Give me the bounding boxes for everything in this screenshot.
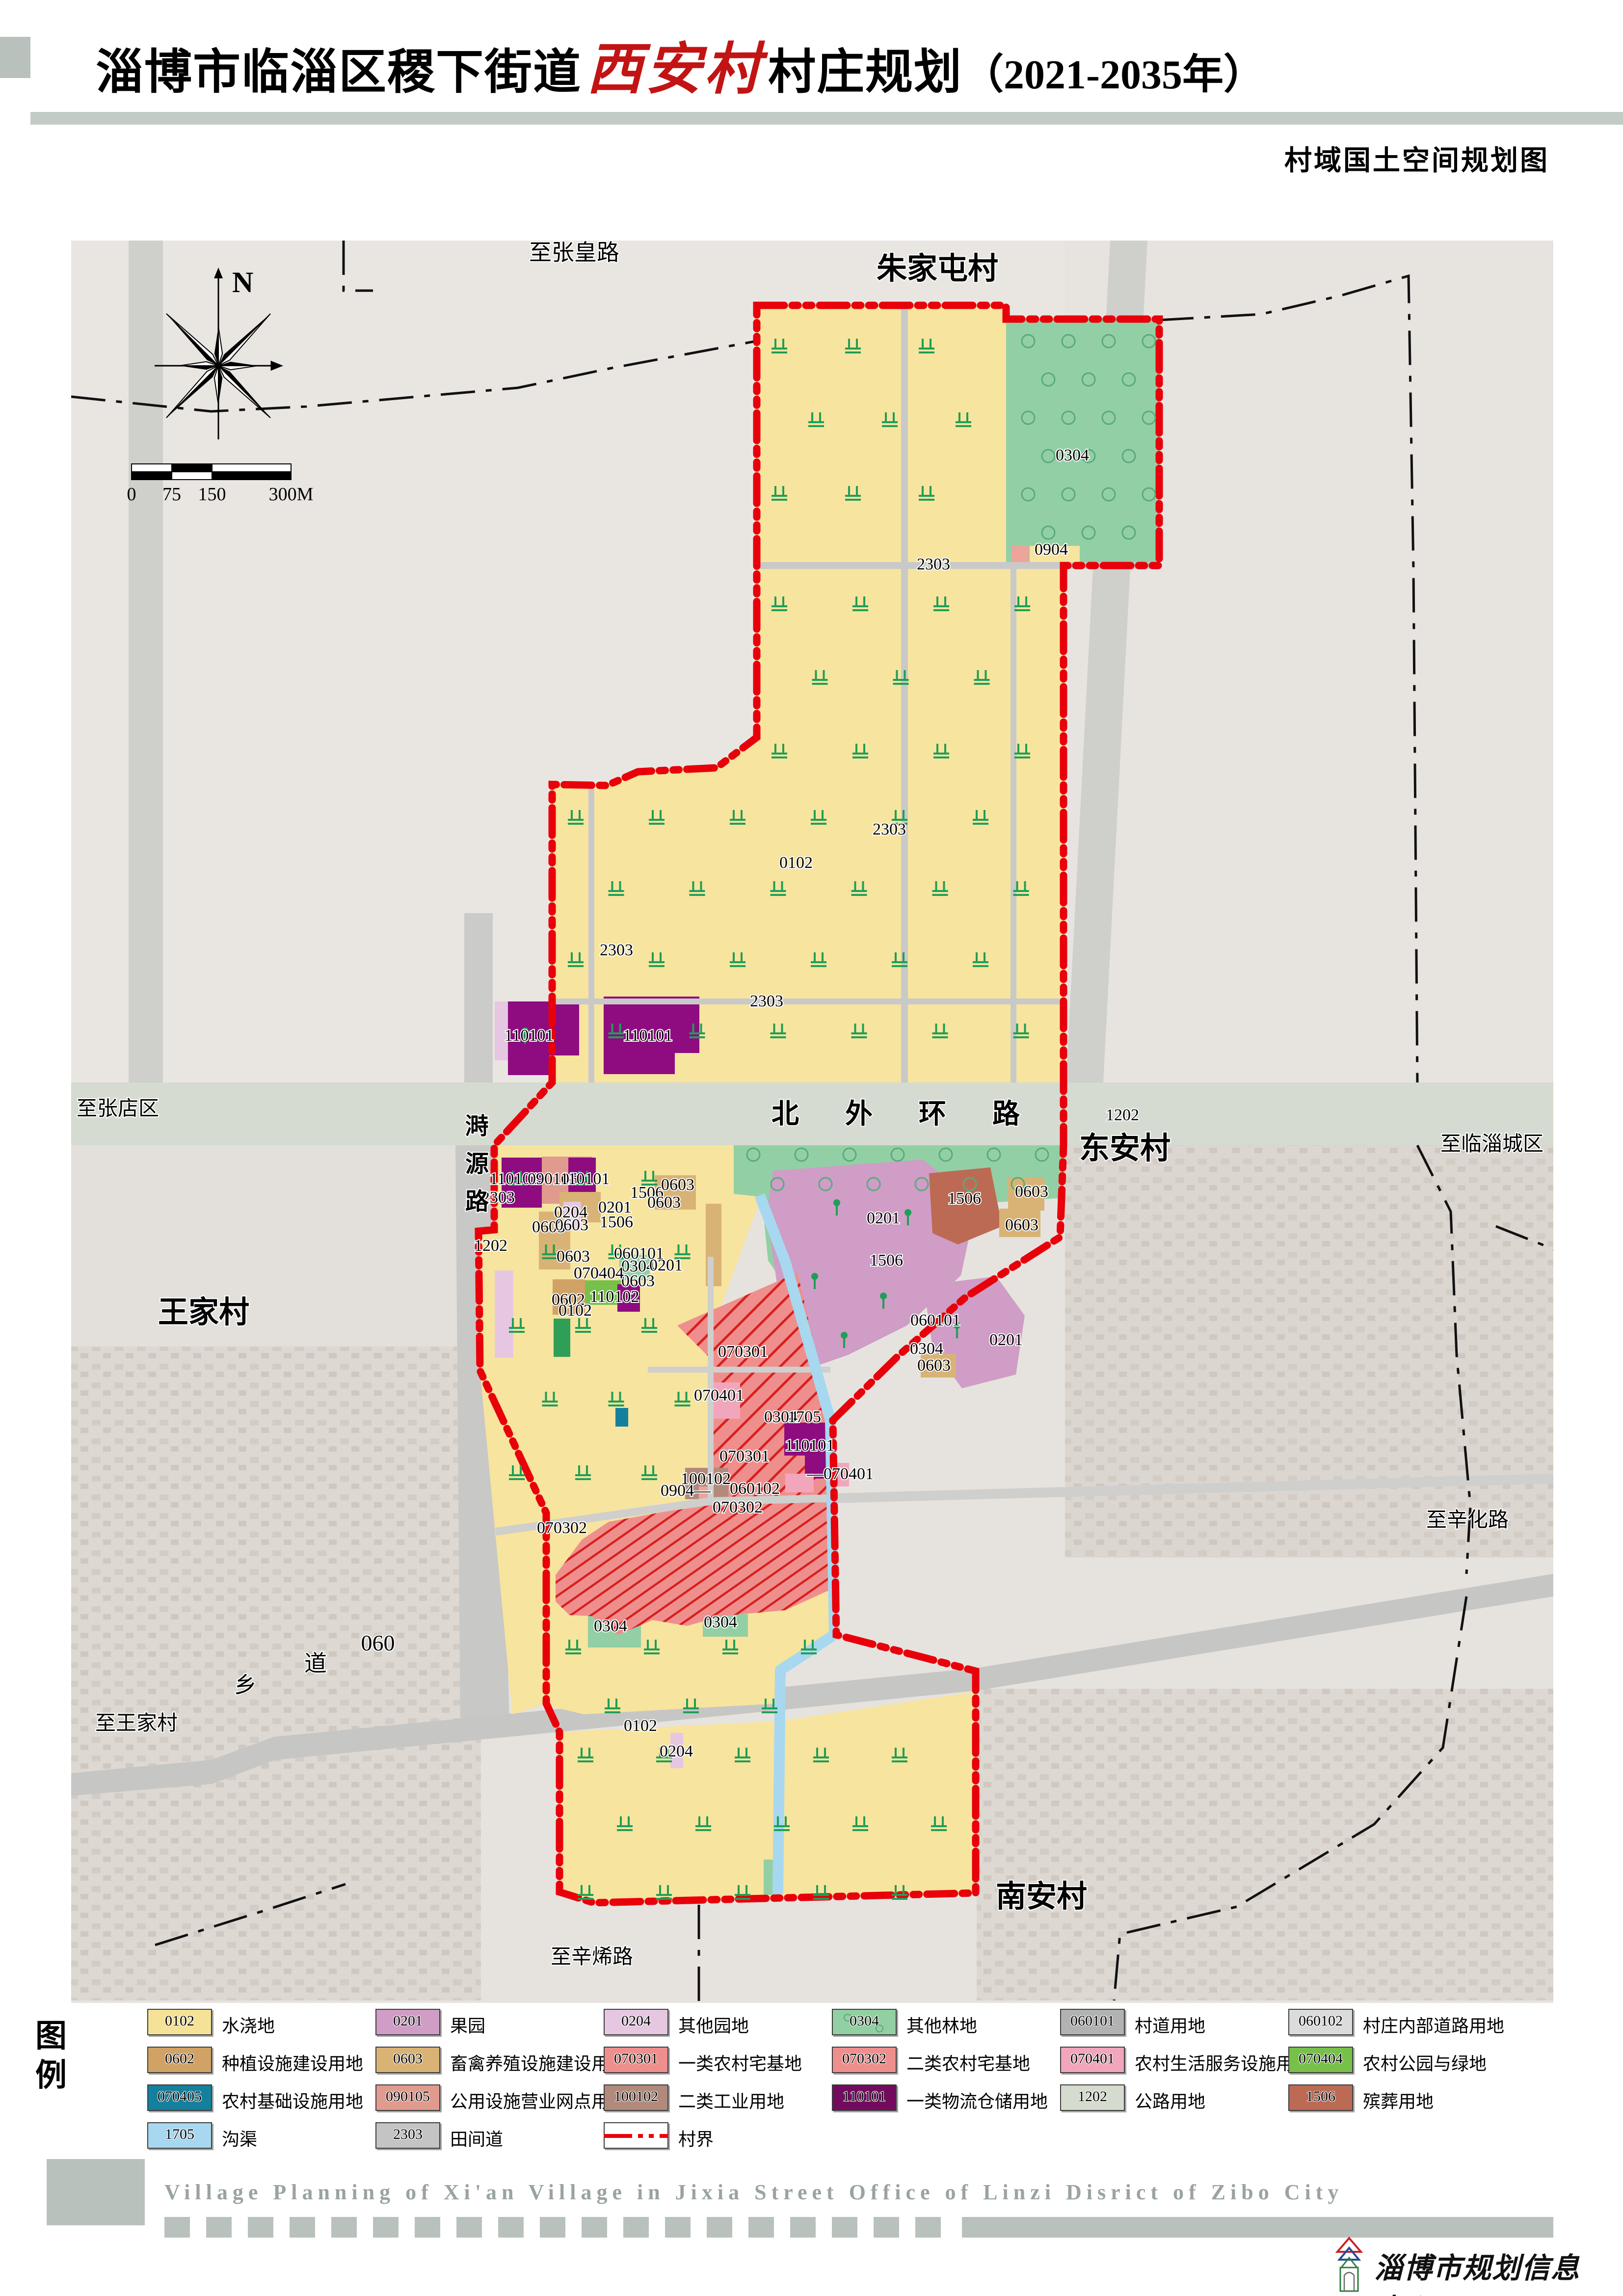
map-label: 至辛化路 bbox=[1426, 1509, 1509, 1532]
legend-title-char: 图 bbox=[35, 2017, 70, 2056]
title-village-name: 西安村 bbox=[582, 38, 768, 101]
map-label: 110101 bbox=[785, 1436, 835, 1455]
map-label: 1705 bbox=[788, 1408, 821, 1426]
map-label: 0102 bbox=[624, 1717, 657, 1735]
rd-shiyuan-north bbox=[464, 913, 493, 1082]
map-label: 0201 bbox=[989, 1331, 1023, 1349]
pagoda-logo-icon bbox=[1328, 2236, 1372, 2295]
scalebar-seg bbox=[172, 464, 212, 472]
map-label: 至张皇路 bbox=[529, 241, 619, 265]
region-sliver-0204-b bbox=[495, 1270, 513, 1358]
legend-code: 070404 bbox=[1288, 2051, 1353, 2067]
planning-map-page: 淄博市临淄区稷下街道西安村村庄规划（2021-2035年） 村域国土空间规划图 … bbox=[0, 0, 1623, 2296]
map-canvas: N075150300M至张皇路朱家屯村030409042303230301022… bbox=[71, 241, 1553, 2003]
footer-dash bbox=[874, 2217, 899, 2238]
legend-label: 公用设施营业网点用地 bbox=[450, 2087, 627, 2113]
map-label: 2303 bbox=[750, 992, 783, 1010]
footer-dash bbox=[164, 2217, 190, 2238]
map-label: 070404 bbox=[574, 1264, 624, 1282]
orchard-icon bbox=[905, 1209, 911, 1216]
footer-dash bbox=[498, 2217, 524, 2238]
map-label: 0102 bbox=[559, 1301, 592, 1320]
map-label: 1202 bbox=[1106, 1106, 1139, 1124]
map-label: 1506 bbox=[948, 1189, 981, 1208]
map-label: 0201 bbox=[649, 1256, 683, 1274]
map-label: 至张店区 bbox=[77, 1098, 159, 1120]
footer-dash bbox=[748, 2217, 774, 2238]
map-label: 0304 bbox=[594, 1617, 627, 1635]
map-label: 0904— bbox=[661, 1482, 711, 1500]
legend-code: 1506 bbox=[1288, 2088, 1353, 2105]
footer-dash-band bbox=[164, 2217, 1553, 2239]
map-label: 道 bbox=[304, 1651, 327, 1676]
map-label: 王家村 bbox=[158, 1296, 249, 1329]
legend-code: 060102 bbox=[1288, 2013, 1353, 2029]
footer-dash bbox=[915, 2217, 941, 2238]
map-label: 1506 bbox=[600, 1213, 633, 1231]
orchard-icon bbox=[880, 1293, 887, 1299]
scalebar-seg bbox=[212, 464, 291, 472]
orchard-icon bbox=[811, 1273, 818, 1280]
rd-left bbox=[129, 241, 163, 1082]
map-label: 110101 bbox=[505, 1026, 554, 1045]
map-label: 东安村 bbox=[1079, 1132, 1171, 1165]
scalebar-label: 0 bbox=[127, 484, 136, 505]
aerial-texture bbox=[977, 1689, 1553, 2000]
footer-dash bbox=[373, 2217, 399, 2238]
legend-label: 沟渠 bbox=[222, 2125, 257, 2151]
map-label: 060102 bbox=[730, 1480, 780, 1498]
legend-label: 村道用地 bbox=[1135, 2012, 1205, 2037]
map-label: 0603 bbox=[647, 1193, 681, 1212]
legend-code: 070302 bbox=[832, 2051, 897, 2067]
legend-label: 畜禽养殖设施建设用地 bbox=[450, 2050, 627, 2075]
map-label: 070301 bbox=[719, 1447, 770, 1465]
region-dkgreen bbox=[554, 1319, 570, 1357]
map-subtitle: 村域国土空间规划图 bbox=[1284, 138, 1549, 178]
legend-code: 110101 bbox=[832, 2088, 897, 2105]
page-title: 淄博市临淄区稷下街道西安村村庄规划（2021-2035年） bbox=[96, 24, 1593, 107]
map-label: 朱家屯村 bbox=[877, 252, 998, 286]
footer-dash bbox=[832, 2217, 857, 2238]
map-label: 2303 bbox=[873, 820, 906, 838]
map-label: 2303 bbox=[917, 555, 950, 573]
legend-title-char: 例 bbox=[35, 2056, 70, 2095]
compass-n-label: N bbox=[232, 266, 253, 298]
footer-dash bbox=[248, 2217, 273, 2238]
legend: 0102水浇地0201果园0204其他园地0304其他林地060101村道用地0… bbox=[147, 2009, 1600, 2166]
orchard-icon bbox=[833, 1199, 840, 1206]
legend-code: 1202 bbox=[1060, 2088, 1125, 2105]
map-label: 至王家村 bbox=[95, 1712, 178, 1735]
map-label: 至临淄城区 bbox=[1440, 1133, 1543, 1156]
scalebar-label: 150 bbox=[198, 484, 226, 505]
scalebar-label: 300M bbox=[269, 484, 314, 505]
map-label: 070401 bbox=[694, 1386, 744, 1405]
map-label: 070301 bbox=[718, 1343, 768, 1361]
map-label: 0904 bbox=[1035, 540, 1068, 559]
header-corner-block bbox=[0, 37, 30, 78]
legend-code: 060101 bbox=[1060, 2013, 1125, 2029]
legend-label: 果园 bbox=[450, 2012, 485, 2037]
legend-code: 070401 bbox=[1060, 2051, 1125, 2067]
footer-dash bbox=[290, 2217, 315, 2238]
map-label: 110102 bbox=[590, 1288, 639, 1306]
map-label: 060101 bbox=[910, 1311, 960, 1329]
publisher-name: 淄博市规划信息中心 bbox=[1374, 2245, 1602, 2296]
legend-label: 殡葬用地 bbox=[1363, 2087, 1434, 2113]
region-forest-0304-big bbox=[1006, 319, 1159, 566]
title-part-prefix: 淄博市临淄区稷下街道 bbox=[96, 46, 582, 99]
legend-boundary-line bbox=[604, 2134, 668, 2138]
footer-dash bbox=[415, 2217, 440, 2238]
map-label: 北 外 环 路 bbox=[772, 1099, 1039, 1130]
map-label: 0603 bbox=[557, 1247, 590, 1266]
map-label: 1506 bbox=[870, 1251, 903, 1270]
map-label: 110101 bbox=[623, 1026, 673, 1045]
legend-code: 0201 bbox=[375, 2013, 440, 2029]
map-label: 2303 bbox=[600, 941, 633, 959]
map-label: 0603 bbox=[555, 1216, 588, 1234]
scalebar-seg bbox=[212, 472, 291, 480]
footer-english-title: Village Planning of Xi'an Village in Jix… bbox=[164, 2180, 1343, 2205]
title-part-suffix: 村庄规划 bbox=[768, 46, 962, 99]
legend-title: 图例 bbox=[35, 2017, 70, 2095]
footer-corner-block bbox=[47, 2159, 145, 2225]
legend-code: 0102 bbox=[147, 2013, 212, 2029]
legend-label: 其他林地 bbox=[906, 2012, 977, 2037]
legend-label: 其他园地 bbox=[678, 2012, 749, 2037]
legend-code: 1705 bbox=[147, 2126, 212, 2143]
map-label: 0603 bbox=[917, 1356, 951, 1375]
legend-code: 070301 bbox=[604, 2051, 668, 2067]
map-label: 1202 bbox=[474, 1237, 507, 1255]
legend-label: 种植设施建设用地 bbox=[222, 2050, 363, 2075]
map-label: 070302 bbox=[537, 1519, 587, 1537]
legend-code: 0603 bbox=[375, 2051, 440, 2067]
road-name-label: 路 bbox=[465, 1189, 489, 1215]
legend-code: 2303 bbox=[375, 2126, 440, 2143]
map-label: —070401 bbox=[806, 1465, 874, 1483]
map-label: 至辛烯路 bbox=[551, 1946, 633, 1969]
footer-solid-bar bbox=[962, 2217, 1553, 2238]
map-label: 南安村 bbox=[996, 1880, 1087, 1914]
map-label: 0603 bbox=[661, 1176, 694, 1194]
footer-dash bbox=[623, 2217, 649, 2238]
orchard-icon bbox=[841, 1332, 848, 1339]
legend-label: 田间道 bbox=[450, 2125, 503, 2151]
footer-dash bbox=[456, 2217, 482, 2238]
scalebar-seg bbox=[132, 464, 172, 472]
region-infra-070405 bbox=[615, 1408, 628, 1427]
aerial-patch bbox=[71, 1145, 481, 1347]
legend-label: 水浇地 bbox=[222, 2012, 275, 2037]
map-label: 0603 bbox=[1015, 1183, 1048, 1201]
scalebar-seg bbox=[132, 472, 172, 480]
road-name-label: 溡 bbox=[465, 1113, 489, 1139]
footer-dash bbox=[790, 2217, 816, 2238]
legend-code: 0204 bbox=[604, 2013, 668, 2029]
footer-dash bbox=[540, 2217, 565, 2238]
legend-label: 村庄内部道路用地 bbox=[1363, 2012, 1504, 2037]
scalebar-seg bbox=[172, 472, 212, 480]
legend-code: 0602 bbox=[147, 2051, 212, 2067]
legend-label: 一类农村宅基地 bbox=[678, 2050, 802, 2075]
title-years: （2021-2035年） bbox=[962, 52, 1265, 98]
legend-label: 一类物流仓储用地 bbox=[906, 2087, 1048, 2113]
legend-label: 村界 bbox=[678, 2125, 714, 2151]
footer-dash bbox=[206, 2217, 232, 2238]
legend-label: 二类工业用地 bbox=[678, 2087, 784, 2113]
legend-label: 二类农村宅基地 bbox=[906, 2050, 1030, 2075]
footer-dash bbox=[665, 2217, 691, 2238]
map-label: 0603 bbox=[1005, 1216, 1038, 1234]
legend-label: 农村基础设施用地 bbox=[222, 2087, 363, 2113]
map-label: 0304 bbox=[910, 1340, 943, 1358]
map-label: 0304 bbox=[704, 1613, 737, 1631]
map-label: 060 bbox=[361, 1630, 395, 1655]
map-label: 0201 bbox=[867, 1209, 900, 1227]
legend-code: 090105 bbox=[375, 2088, 440, 2105]
aerial-texture bbox=[1065, 1145, 1553, 1558]
map-label: 0304 bbox=[1056, 446, 1089, 464]
map-label: 乡 bbox=[234, 1673, 257, 1698]
village-planning-map-svg: N075150300M至张皇路朱家屯村030409042303230301022… bbox=[71, 241, 1553, 2003]
footer-dash bbox=[707, 2217, 732, 2238]
road-name-label: 源 bbox=[465, 1151, 489, 1177]
map-label: 0204 bbox=[660, 1742, 693, 1760]
scalebar-label: 75 bbox=[162, 484, 181, 505]
legend-label: 农村公园与绿地 bbox=[1363, 2050, 1487, 2075]
map-label: 070302 bbox=[713, 1498, 763, 1516]
map-label: 110101 bbox=[560, 1170, 610, 1188]
map-label: 0102 bbox=[779, 854, 813, 872]
legend-code: 100102 bbox=[604, 2088, 668, 2105]
aerial-texture bbox=[71, 1347, 481, 2000]
footer-dash bbox=[582, 2217, 607, 2238]
legend-label: 公路用地 bbox=[1135, 2087, 1205, 2113]
footer-dash bbox=[331, 2217, 357, 2238]
publisher-logo: 淄博市规划信息中心 bbox=[1328, 2236, 1602, 2295]
title-underline-band bbox=[30, 112, 1623, 125]
legend-label: 农村生活服务设施用地 bbox=[1135, 2050, 1311, 2075]
legend-code: 0304 bbox=[832, 2013, 897, 2029]
legend-code: 070405 bbox=[147, 2088, 212, 2105]
